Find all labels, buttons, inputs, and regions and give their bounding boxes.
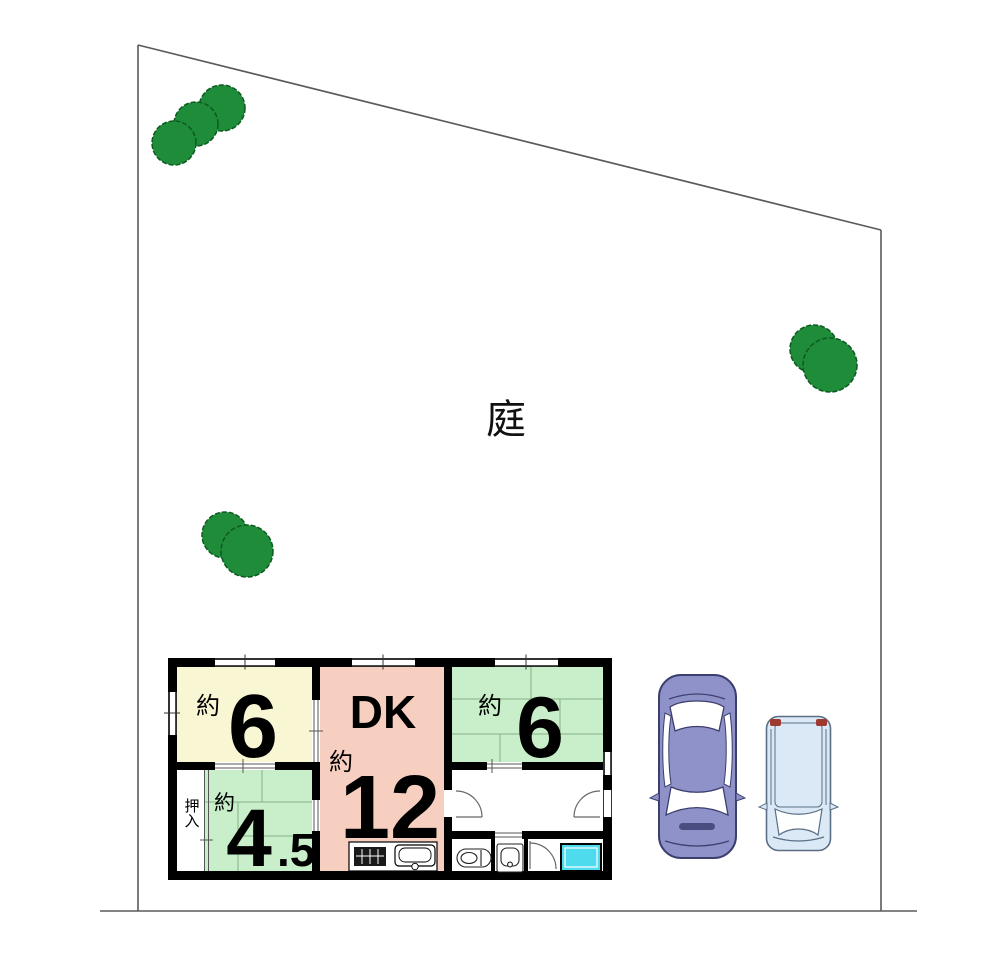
compact-taillight-right (816, 719, 827, 726)
room-dk-title: DK (350, 686, 416, 738)
sedan-hood-vent (679, 823, 715, 830)
tree-cluster-west (202, 512, 273, 577)
sedan-mirror-left (650, 793, 659, 801)
site-plan-drawing: 庭 (0, 0, 1000, 977)
boundary-line-north (138, 45, 881, 230)
closet-label: 押入 (183, 798, 200, 828)
tree-icon (221, 525, 273, 577)
wash-basin-icon (497, 844, 523, 872)
toilet-icon (457, 849, 491, 867)
washroom-opening (495, 831, 522, 839)
room-dk-size-label: 12 (340, 758, 440, 858)
bathtub-icon (561, 844, 601, 871)
room-sw-size-sub-label: .5 (277, 824, 315, 876)
compact-mirror-right (830, 803, 838, 810)
room-sw-size-main-label: 4 (226, 793, 272, 884)
site-plan-canvas: 庭 (0, 0, 1000, 977)
floorplan: 約 6 DK 約 12 約 6 約 4 .5 押入 (164, 655, 612, 885)
sedan-car-top-view (650, 675, 745, 858)
tree-icon (803, 338, 857, 392)
garden-label: 庭 (486, 398, 526, 442)
tree-icon (152, 121, 196, 165)
compact-mirror-left (759, 803, 767, 810)
tree-cluster-northwest (152, 85, 245, 165)
compact-taillight-left (770, 719, 781, 726)
sedan-rear-window (670, 701, 724, 731)
sedan-mirror-right (736, 793, 745, 801)
compact-car-top-view (759, 717, 838, 851)
room-ne-size-label: 6 (516, 680, 564, 776)
tree-cluster-east (790, 325, 857, 392)
window-east (604, 752, 611, 775)
room-ne-approx-label: 約 (478, 693, 502, 720)
room-nw-size-label: 6 (228, 677, 278, 777)
room-nw-approx-label: 約 (196, 693, 220, 720)
